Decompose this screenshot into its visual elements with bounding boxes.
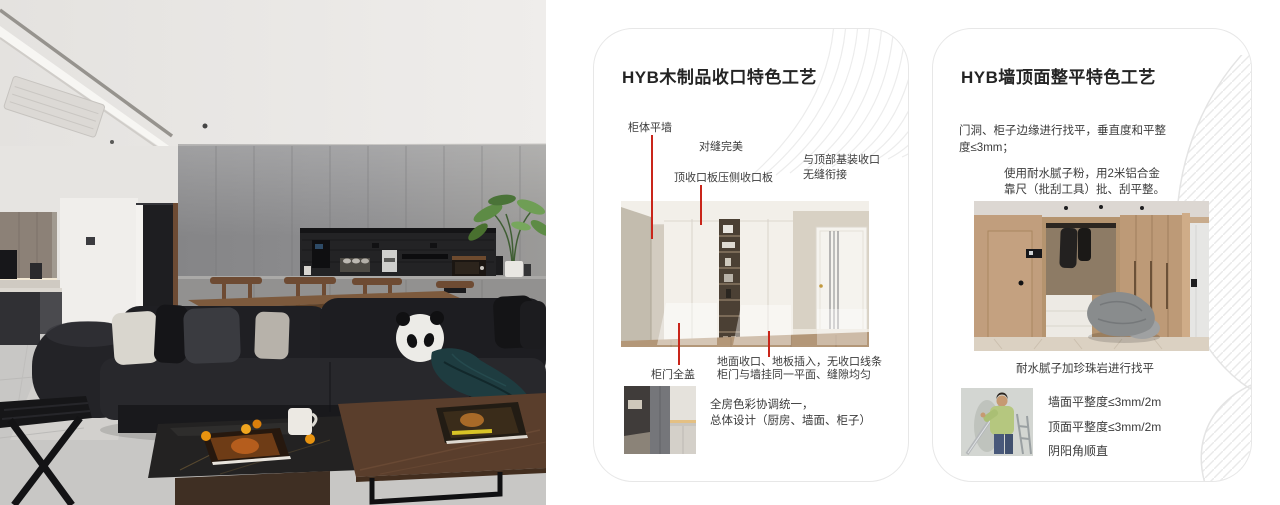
paragraph-putty: 使用耐水腻子粉，用2米铝合金 靠尺（批刮工具）批、刮平整。	[1004, 166, 1165, 198]
callout-perfect-seam: 对缝完美	[699, 140, 743, 154]
callout-top-board: 顶收口板压侧收口板	[674, 171, 773, 185]
kitchen	[0, 212, 62, 345]
wall-switch	[86, 237, 95, 245]
door-handle	[819, 284, 823, 288]
paragraph-line: 使用耐水腻子粉，用2米铝合金	[1004, 166, 1165, 182]
callout-full-cover-door: 柜门全盖	[651, 368, 695, 382]
paragraph-line: 度≤3mm；	[959, 140, 1166, 157]
door-handle	[1019, 281, 1024, 286]
card-wood-finish: HYB木制品收口特色工艺 柜体平墙 对缝完美 顶收口板压侧收口板 与顶部基装收口…	[593, 28, 909, 482]
living-room-photo	[0, 0, 546, 505]
summary-overall-design: 总体设计（厨房、墙面、柜子）	[710, 412, 871, 428]
page: HYB木制品收口特色工艺 柜体平墙 对缝完美 顶收口板压侧收口板 与顶部基装收口…	[0, 0, 1280, 505]
card-wall-leveling: HYB墙顶面整平特色工艺 门洞、柜子边缘进行找平，垂直度和平整 度≤3mm； 使…	[932, 28, 1252, 482]
callout-ceiling-joint: 与顶部基装收口	[803, 153, 880, 167]
spotlight	[110, 140, 114, 144]
fig-ceiling	[974, 201, 1209, 217]
spec-wall-flatness: 墙面平整度≤3mm/2m	[1048, 393, 1161, 410]
mug	[288, 408, 316, 435]
hallway-figure	[974, 201, 1209, 351]
paragraph-leveling: 门洞、柜子边缘进行找平，垂直度和平整 度≤3mm；	[959, 123, 1166, 157]
spec-corners: 阴阳角顺直	[1048, 442, 1161, 459]
card-title: HYB墙顶面整平特色工艺	[961, 63, 1156, 88]
fig-glass-door	[1182, 213, 1209, 345]
fig-side-wall	[621, 207, 651, 347]
coffee-machine	[0, 250, 17, 279]
callout-ceiling-joint-2: 无缝衔接	[803, 168, 847, 182]
spec-list: 墙面平整度≤3mm/2m 顶面平整度≤3mm/2m 阴阳角顺直	[1048, 393, 1161, 467]
leader-line	[700, 185, 702, 225]
paragraph-line: 靠尺（批刮工具）批、刮平整。	[1004, 182, 1165, 198]
note-floor-joint: 地面收口、地板插入，无收口线条	[717, 356, 882, 370]
fig-left-door-wall	[974, 215, 1046, 341]
speaker	[452, 256, 486, 277]
kitchen-thumbnail	[624, 386, 696, 454]
planter-pot	[505, 261, 523, 277]
spec-ceiling-flatness: 顶面平整度≤3mm/2m	[1048, 418, 1161, 435]
card-title: HYB木制品收口特色工艺	[622, 63, 817, 88]
living-room-scene	[0, 0, 546, 505]
ceiling	[0, 0, 546, 166]
magazine	[436, 402, 528, 444]
leader-line	[678, 323, 680, 365]
leader-line	[768, 331, 770, 357]
note-flush-plane: 柜门与墙挂同一平面、缝隙均匀	[717, 369, 871, 383]
spotlight	[203, 124, 208, 129]
appliance-niche	[300, 228, 496, 278]
paragraph-line: 门洞、柜子边缘进行找平，垂直度和平整	[959, 123, 1166, 140]
leader-line	[651, 135, 653, 239]
worker-thumbnail	[961, 388, 1033, 456]
callout-cabinet-flush-wall: 柜体平墙	[628, 121, 672, 135]
figure-caption: 耐水腻子加珍珠岩进行找平	[1016, 360, 1154, 376]
summary-color-harmony: 全房色彩协调统一，	[710, 396, 814, 412]
wardrobe-figure	[621, 201, 869, 347]
